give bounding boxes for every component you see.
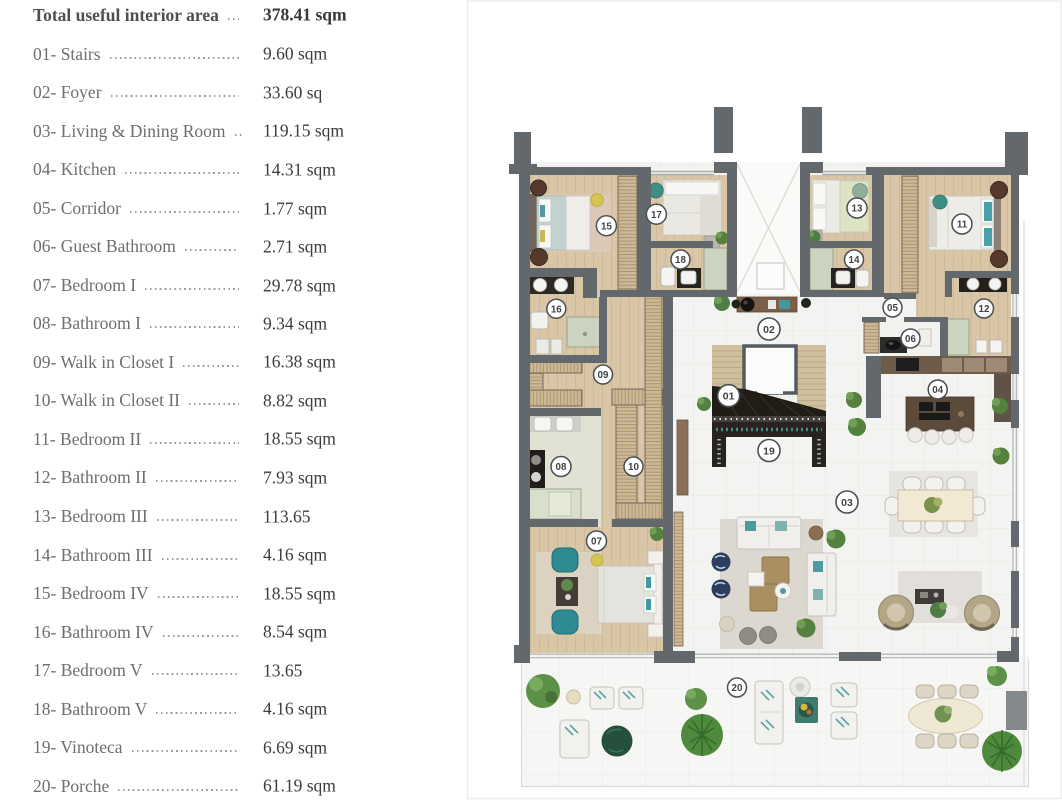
svg-text:05: 05 — [887, 303, 898, 314]
svg-text:17: 17 — [651, 210, 662, 221]
svg-text:04: 04 — [932, 385, 943, 396]
svg-text:01: 01 — [723, 391, 735, 403]
svg-text:15: 15 — [601, 221, 612, 232]
svg-text:10: 10 — [628, 462, 639, 473]
svg-text:09: 09 — [598, 370, 609, 381]
svg-text:19: 19 — [763, 445, 775, 457]
svg-text:12: 12 — [979, 304, 990, 315]
svg-text:07: 07 — [591, 537, 602, 548]
svg-text:18: 18 — [675, 255, 686, 266]
svg-text:14: 14 — [849, 255, 860, 266]
svg-text:06: 06 — [905, 334, 916, 345]
svg-text:16: 16 — [551, 304, 562, 315]
svg-text:02: 02 — [763, 324, 775, 336]
svg-text:13: 13 — [852, 204, 863, 215]
svg-text:20: 20 — [732, 683, 743, 694]
svg-text:03: 03 — [841, 497, 853, 509]
svg-text:08: 08 — [556, 462, 567, 473]
svg-text:11: 11 — [957, 220, 968, 231]
